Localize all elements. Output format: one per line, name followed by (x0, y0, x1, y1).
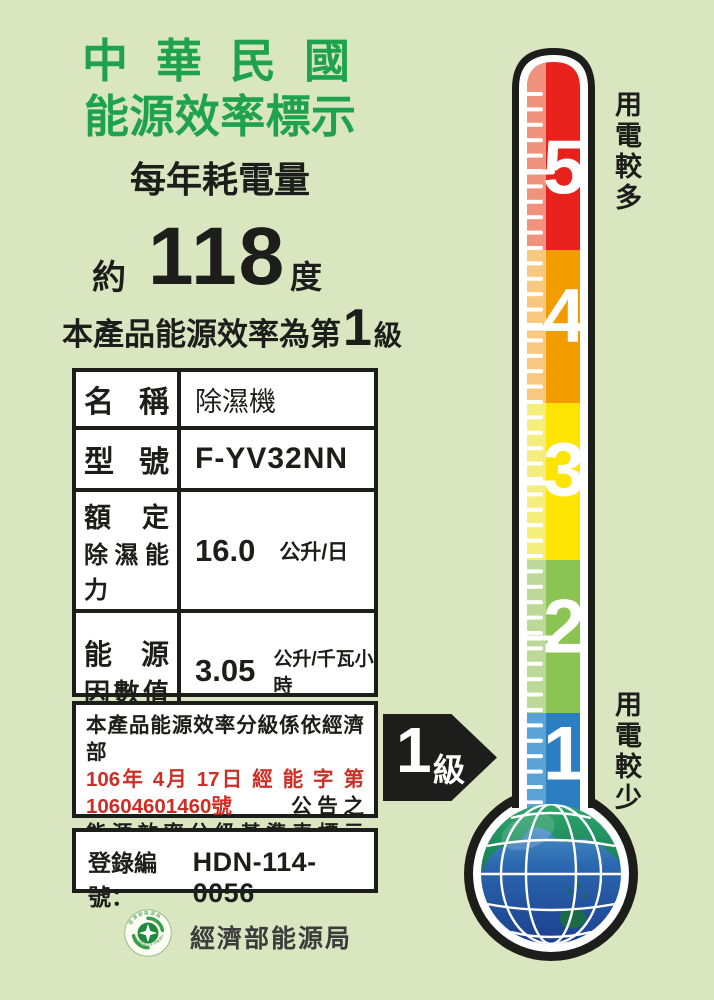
agency-name: 經濟部能源局 (190, 919, 352, 955)
level-2-number: 2 (543, 585, 585, 670)
uses-less-power-note: 用電較少 (612, 690, 639, 814)
approx-label: 約 (92, 250, 126, 299)
energy-efficiency-label: 中華民國 能源效率標示 每年耗電量 約 118 度 本產品能源效率為第 1 級 … (0, 0, 714, 1000)
row-capacity-label-line1: 額定 (84, 496, 169, 535)
spec-table: 名稱 除濕機 型號 F-YV32NN 額定 除濕能力 16.0 公升/日 能源 … (72, 368, 378, 697)
table-row-name: 名稱 除濕機 (76, 372, 374, 426)
grade-statement-number: 1 (343, 298, 372, 358)
row-ef-value: 3.05 (195, 653, 255, 689)
level-4-number: 4 (543, 274, 585, 359)
level-1-number: 1 (543, 712, 585, 797)
row-capacity-unit: 公升/日 (279, 536, 348, 566)
registration-label: 登錄編號： (88, 844, 193, 912)
row-model-label: 型號 (84, 437, 169, 481)
notice-line3-number-red: 10604601460號 (86, 793, 232, 820)
grade-statement: 本產品能源效率為第 1 級 (62, 298, 402, 358)
row-ef-label-line1: 能源 (84, 633, 169, 673)
label-title-line2: 能源效率標示 (84, 92, 356, 142)
notice-line3-black: 公 告 之 (291, 793, 364, 820)
registration-number: HDN-114-0056 (193, 847, 362, 909)
row-capacity-value: 16.0 (195, 533, 255, 569)
uses-more-power-note: 用電較多 (612, 90, 639, 214)
annual-consumption-value: 118 (148, 210, 286, 304)
regulation-notice: 本產品能源效率分級係依經濟部 106年 4月 17日 經 能 字 第 10604… (72, 701, 378, 818)
table-row-model: 型號 F-YV32NN (76, 426, 374, 488)
annual-consumption-heading: 每年耗電量 (130, 151, 310, 203)
consumption-unit-label: 度 (290, 252, 322, 298)
row-ef-unit: 公升/千瓦小時 (273, 644, 374, 698)
row-name-value: 除濕機 (195, 380, 276, 419)
row-model-value: F-YV32NN (195, 442, 348, 476)
label-title-line1: 中華民國 (82, 36, 350, 87)
grade-statement-suffix: 級 (374, 314, 402, 354)
table-row-capacity: 額定 除濕能力 16.0 公升/日 (76, 488, 374, 609)
grade-statement-prefix: 本產品能源效率為第 (62, 309, 341, 354)
notice-line1: 本產品能源效率分級係依經濟部 (86, 712, 364, 766)
notice-line2-date-red: 106年 4月 17日 經 能 字 第 (86, 766, 364, 793)
row-capacity-label-line2: 除濕能力 (84, 535, 169, 605)
level-5-number: 5 (543, 126, 585, 211)
pointer-grade-suffix: 級 (433, 754, 465, 786)
row-name-label: 名稱 (84, 377, 169, 421)
registration-box: 登錄編號： HDN-114-0056 (72, 828, 378, 893)
level-3-number: 3 (543, 428, 585, 513)
notice-line3: 10604601460號 公 告 之 (86, 793, 364, 820)
bureau-of-energy-seal-icon: 經濟部能源局 BUREAU OF ENERGY (124, 909, 172, 957)
pointer-grade-number: 1 (396, 718, 432, 782)
